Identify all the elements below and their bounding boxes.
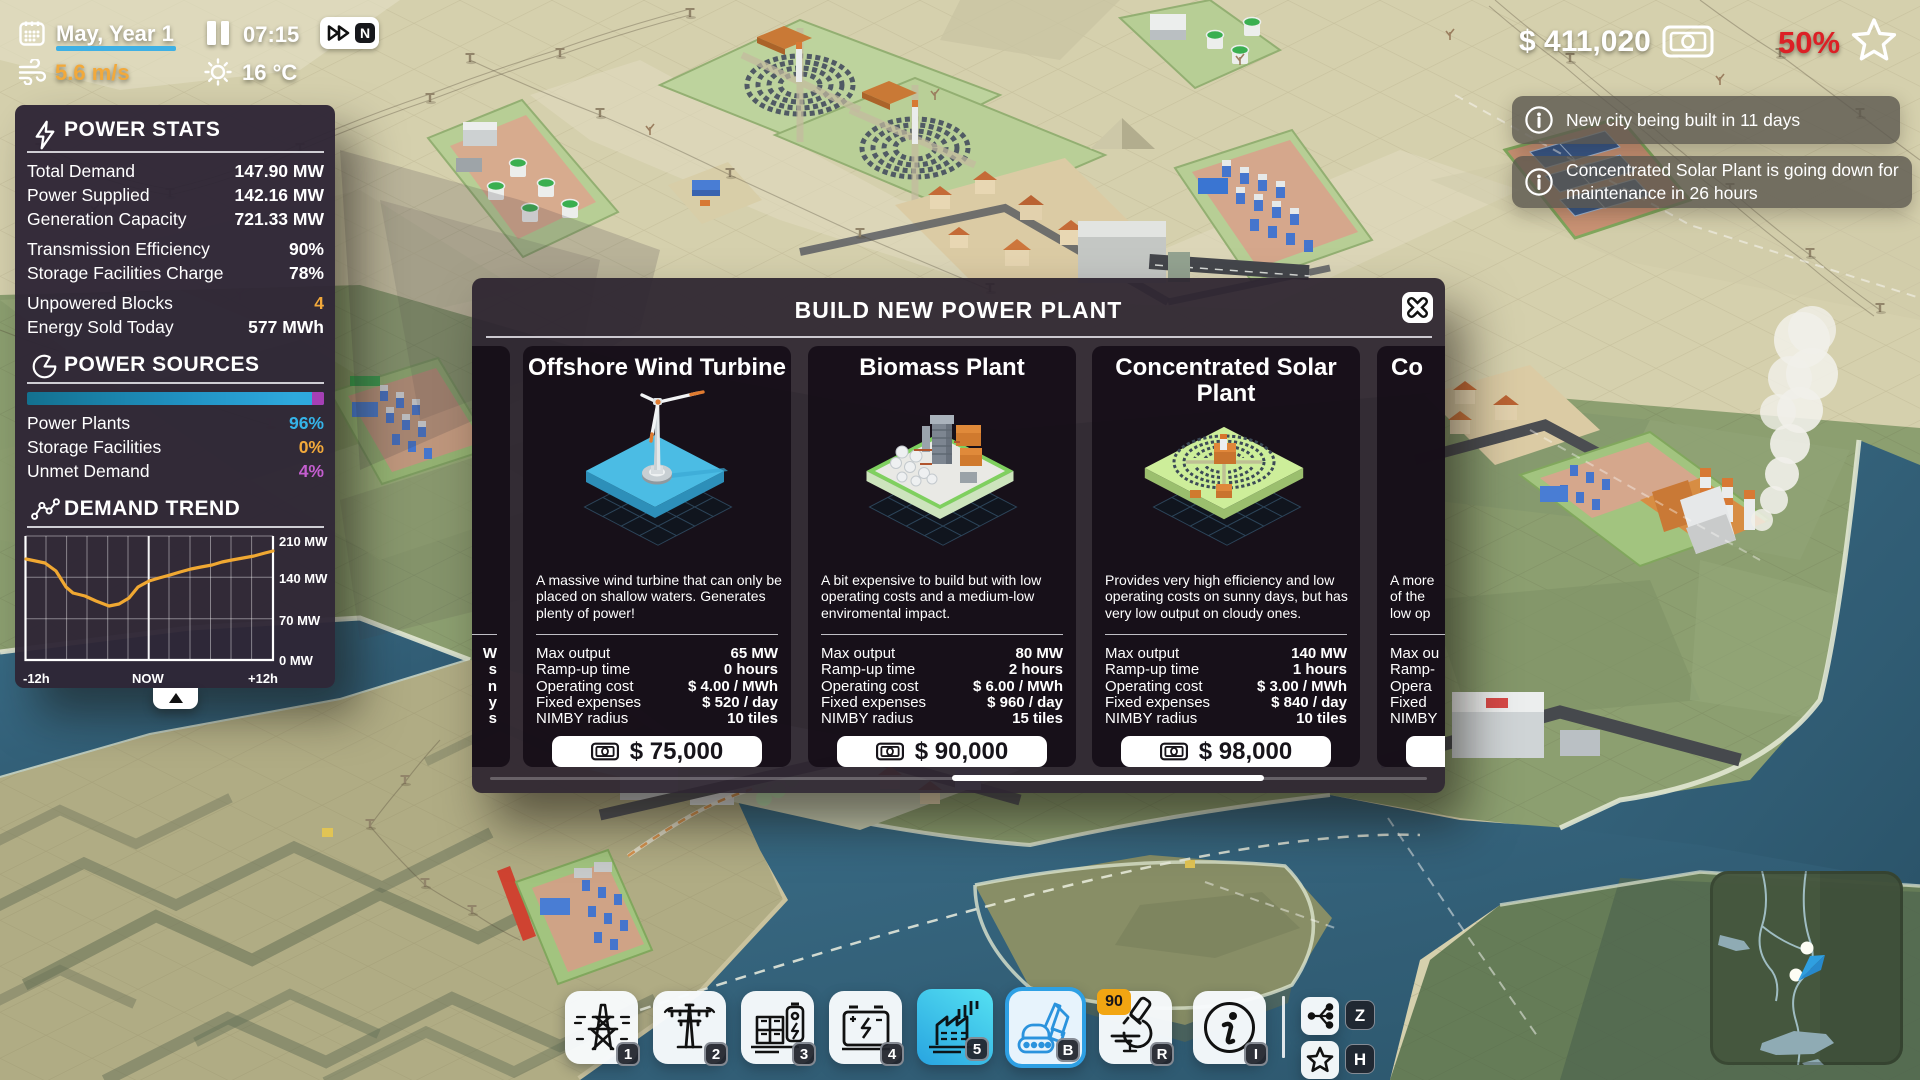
svg-text:140 MW: 140 MW	[279, 571, 328, 586]
svg-text:NOW: NOW	[132, 671, 165, 686]
svg-text:-12h: -12h	[23, 671, 50, 686]
svg-text:+12h: +12h	[248, 671, 278, 686]
svg-text:210 MW: 210 MW	[279, 534, 328, 549]
svg-text:70 MW: 70 MW	[279, 613, 321, 628]
svg-text:0 MW: 0 MW	[279, 653, 314, 668]
